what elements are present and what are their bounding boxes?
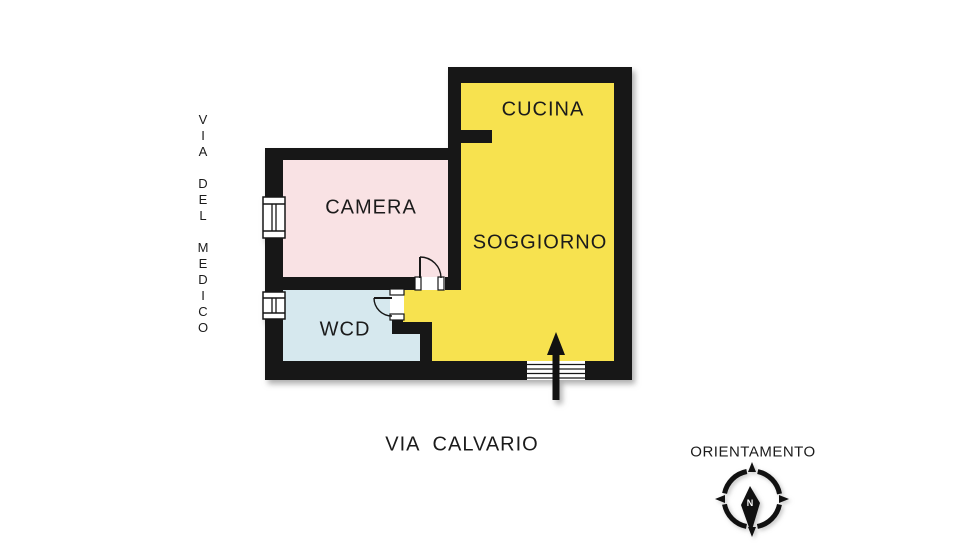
- compass-title: ORIENTAMENTO: [690, 444, 815, 461]
- compass-tick-east: [779, 495, 789, 503]
- cucina-divider-wall-stub: [461, 130, 492, 143]
- compass-tick-west: [715, 495, 725, 503]
- room-label-cucina: CUCINA: [502, 99, 585, 122]
- floorplan-svg: N: [0, 0, 960, 550]
- room-label-soggiorno: SOGGIORNO: [473, 232, 608, 255]
- window-camera-icon: [263, 197, 285, 238]
- room-label-wcd: WCD: [320, 319, 371, 342]
- compass-needle-label: N: [747, 498, 754, 508]
- street-label-via-calvario: VIA CALVARIO: [385, 434, 538, 457]
- street-label-via-del-medico: V I A D E L M E D I C O: [198, 112, 209, 336]
- compass-rose-icon: N: [715, 462, 789, 537]
- compass-tick-north: [748, 462, 756, 472]
- floorplan-canvas: N CUCINA CAMERA SOGGIORNO WCD V I A D E …: [0, 0, 960, 550]
- room-label-camera: CAMERA: [325, 197, 417, 220]
- window-wcd-icon: [263, 292, 285, 319]
